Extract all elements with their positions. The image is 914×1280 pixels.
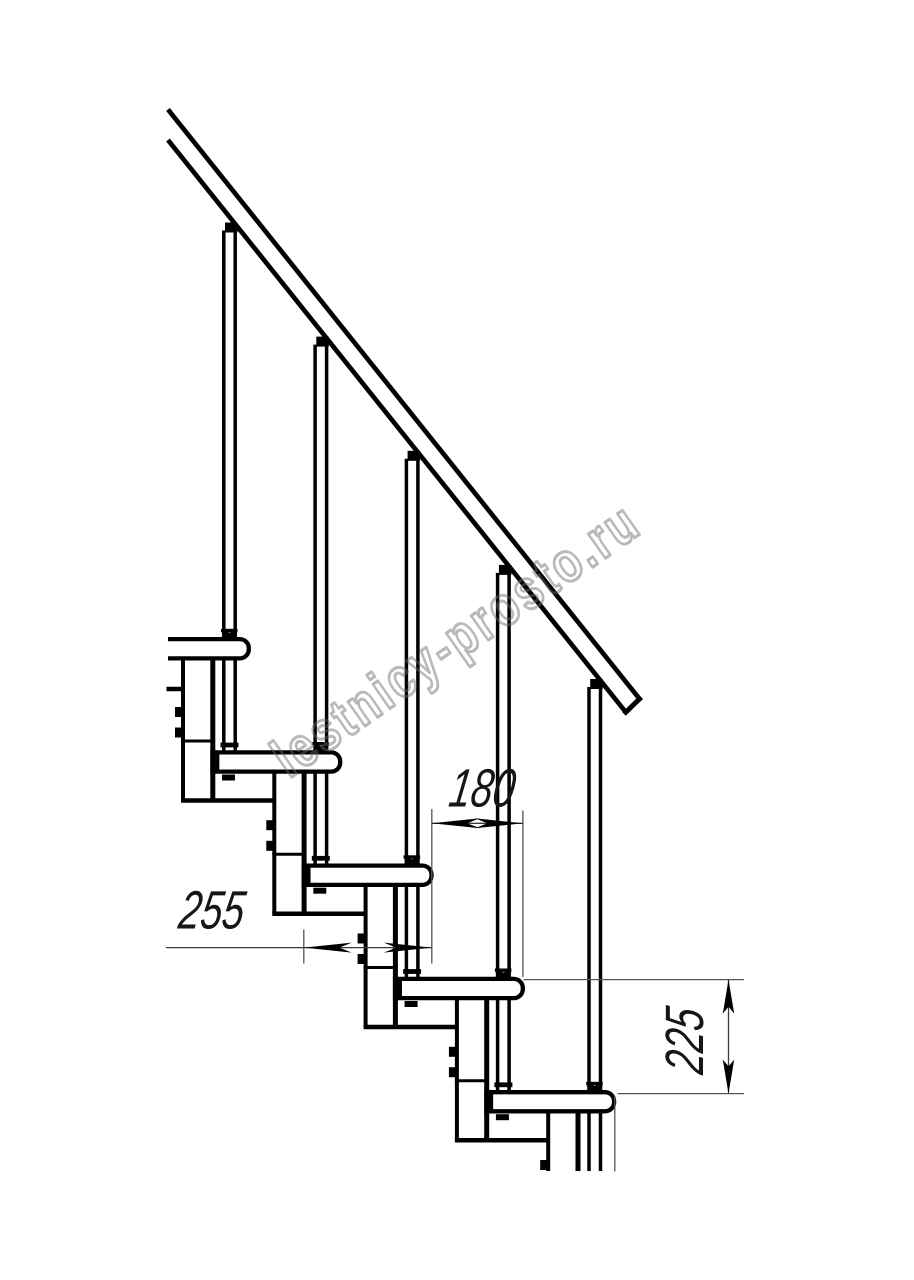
svg-text:180: 180 bbox=[445, 759, 519, 819]
svg-text:225: 225 bbox=[655, 1003, 715, 1078]
svg-text:255: 255 bbox=[174, 881, 249, 941]
